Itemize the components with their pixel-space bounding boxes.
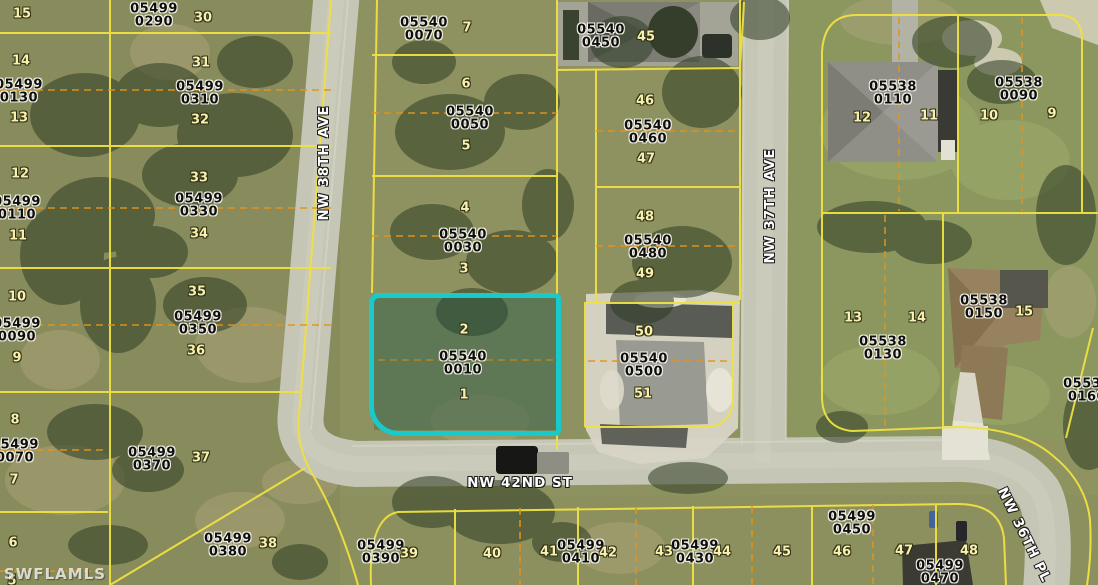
aerial-parcel-map[interactable]: 0549902900549901300549903100549901100549… [0, 0, 1098, 585]
watermark: SWFLAMLS [4, 565, 106, 583]
highlighted-parcel[interactable] [369, 293, 561, 436]
